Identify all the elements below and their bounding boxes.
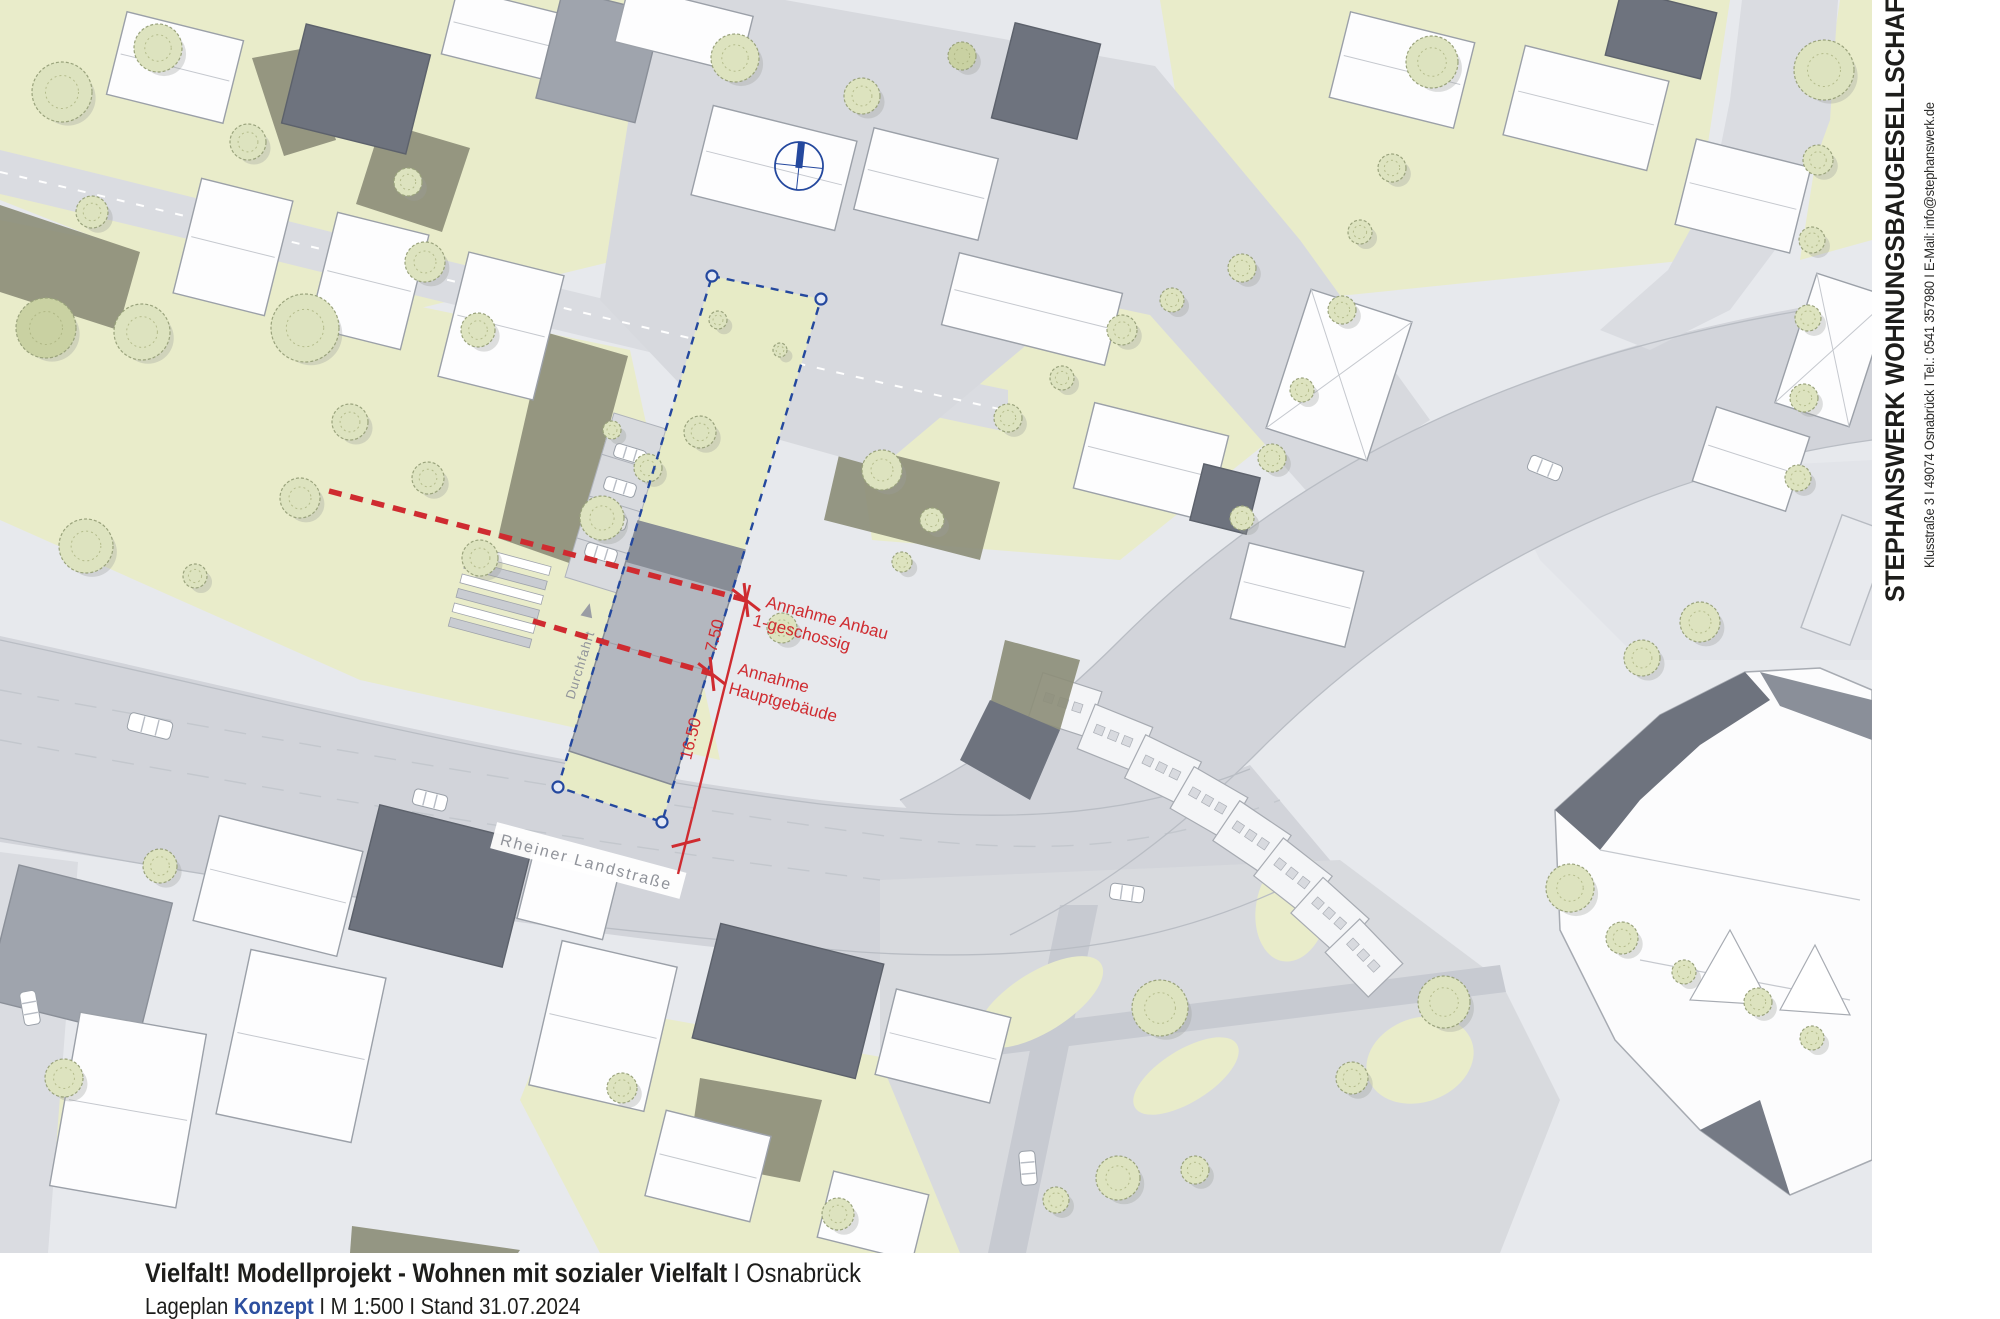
scale-and-date: I M 1:500 I Stand 31.07.2024 xyxy=(319,1293,580,1319)
car-icon xyxy=(1019,1150,1038,1185)
boundary-node xyxy=(707,271,718,282)
doc-phase: Konzept xyxy=(234,1293,314,1319)
doc-type: Lageplan xyxy=(145,1293,228,1319)
company-name: STEPHANSWERK WOHNUNGSBAUGESELLSCHAFT mbH xyxy=(1880,0,1911,602)
boundary-node xyxy=(553,782,564,793)
project-title: Vielfalt! Modellprojekt - Wohnen mit soz… xyxy=(145,1258,727,1288)
title-line-1: Vielfalt! Modellprojekt - Wohnen mit soz… xyxy=(145,1258,861,1289)
project-city: Osnabrück xyxy=(746,1258,861,1288)
boundary-node xyxy=(657,817,668,828)
company-contact: Klusstraße 3 I 49074 Osnabrück I Tel.: 0… xyxy=(1922,102,1937,568)
title-line-2: Lageplan Konzept I M 1:500 I Stand 31.07… xyxy=(145,1293,580,1319)
site-plan-map: Rheiner Landstraße Durchfahrt xyxy=(0,0,2000,1319)
site-plan-page: Rheiner Landstraße Durchfahrt xyxy=(0,0,2000,1319)
boundary-node xyxy=(816,294,827,305)
title-separator: I xyxy=(733,1258,740,1288)
